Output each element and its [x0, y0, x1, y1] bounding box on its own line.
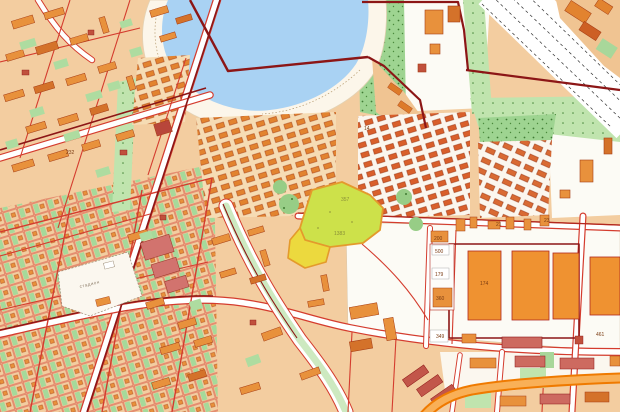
map-viewport[interactable]: 357 1383 стадион 200 500 179 360 174 349…	[0, 0, 620, 412]
building-number: 174	[480, 281, 489, 287]
building-number: 23	[544, 218, 550, 224]
cadastral-map-canvas[interactable]: 357 1383 стадион 200 500 179 360 174 349…	[0, 0, 620, 412]
building-number: 500	[435, 249, 444, 255]
building-number: 200	[434, 236, 443, 242]
building-number: 232	[66, 150, 75, 156]
parcel-label: 1383	[334, 231, 345, 237]
building-number: 21	[496, 222, 502, 228]
building-number: 360	[436, 296, 445, 302]
building-number: 461	[596, 332, 605, 338]
building-number: 14	[364, 126, 370, 132]
building-number: 349	[436, 334, 445, 340]
building-number: 179	[435, 272, 444, 278]
parcel-label: 357	[341, 197, 350, 203]
